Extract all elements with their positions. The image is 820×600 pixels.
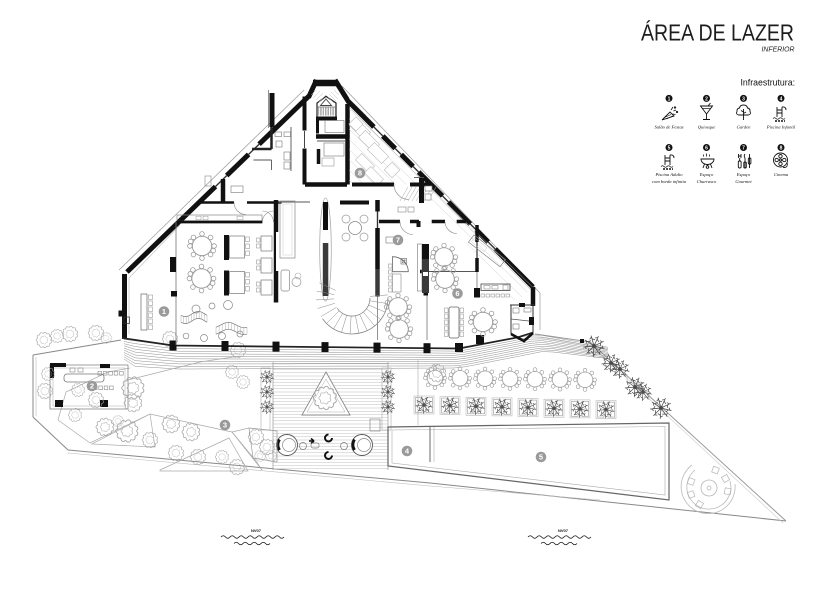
svg-text:INFERIOR: INFERIOR [762, 45, 796, 54]
svg-text:5: 5 [539, 453, 543, 462]
svg-text:NV07: NV07 [251, 528, 262, 533]
svg-text:7: 7 [396, 236, 400, 245]
svg-text:4: 4 [780, 96, 783, 102]
svg-text:6: 6 [455, 289, 459, 298]
svg-text:3: 3 [742, 96, 745, 102]
svg-text:5: 5 [668, 145, 671, 151]
svg-text:3: 3 [223, 421, 227, 430]
svg-text:NV07: NV07 [558, 528, 569, 533]
svg-text:ÁREA DE LAZER: ÁREA DE LAZER [641, 20, 794, 46]
svg-text:2: 2 [705, 96, 708, 102]
svg-text:Salão de Festas: Salão de Festas [654, 125, 683, 130]
svg-text:Piscina Adulto: Piscina Adulto [654, 172, 683, 177]
svg-text:8: 8 [780, 145, 783, 151]
svg-text:Piscina Infantil: Piscina Infantil [766, 125, 796, 130]
svg-text:2: 2 [90, 382, 94, 391]
svg-text:Espaço: Espaço [736, 172, 751, 177]
svg-text:com borda infinita: com borda infinita [652, 179, 687, 184]
svg-text:Garden: Garden [737, 125, 752, 130]
svg-text:Quiosque: Quiosque [698, 125, 716, 130]
svg-text:Churrasco: Churrasco [697, 179, 717, 184]
svg-text:8: 8 [358, 169, 362, 178]
svg-text:Espaço: Espaço [699, 172, 714, 177]
svg-text:7: 7 [742, 145, 745, 151]
svg-text:6: 6 [705, 145, 708, 151]
svg-text:1: 1 [162, 307, 166, 316]
svg-text:Gourmet: Gourmet [735, 179, 752, 184]
svg-text:Infraestrutura:: Infraestrutura: [741, 78, 796, 88]
svg-text:1: 1 [668, 96, 671, 102]
svg-text:Cinema: Cinema [774, 172, 789, 177]
